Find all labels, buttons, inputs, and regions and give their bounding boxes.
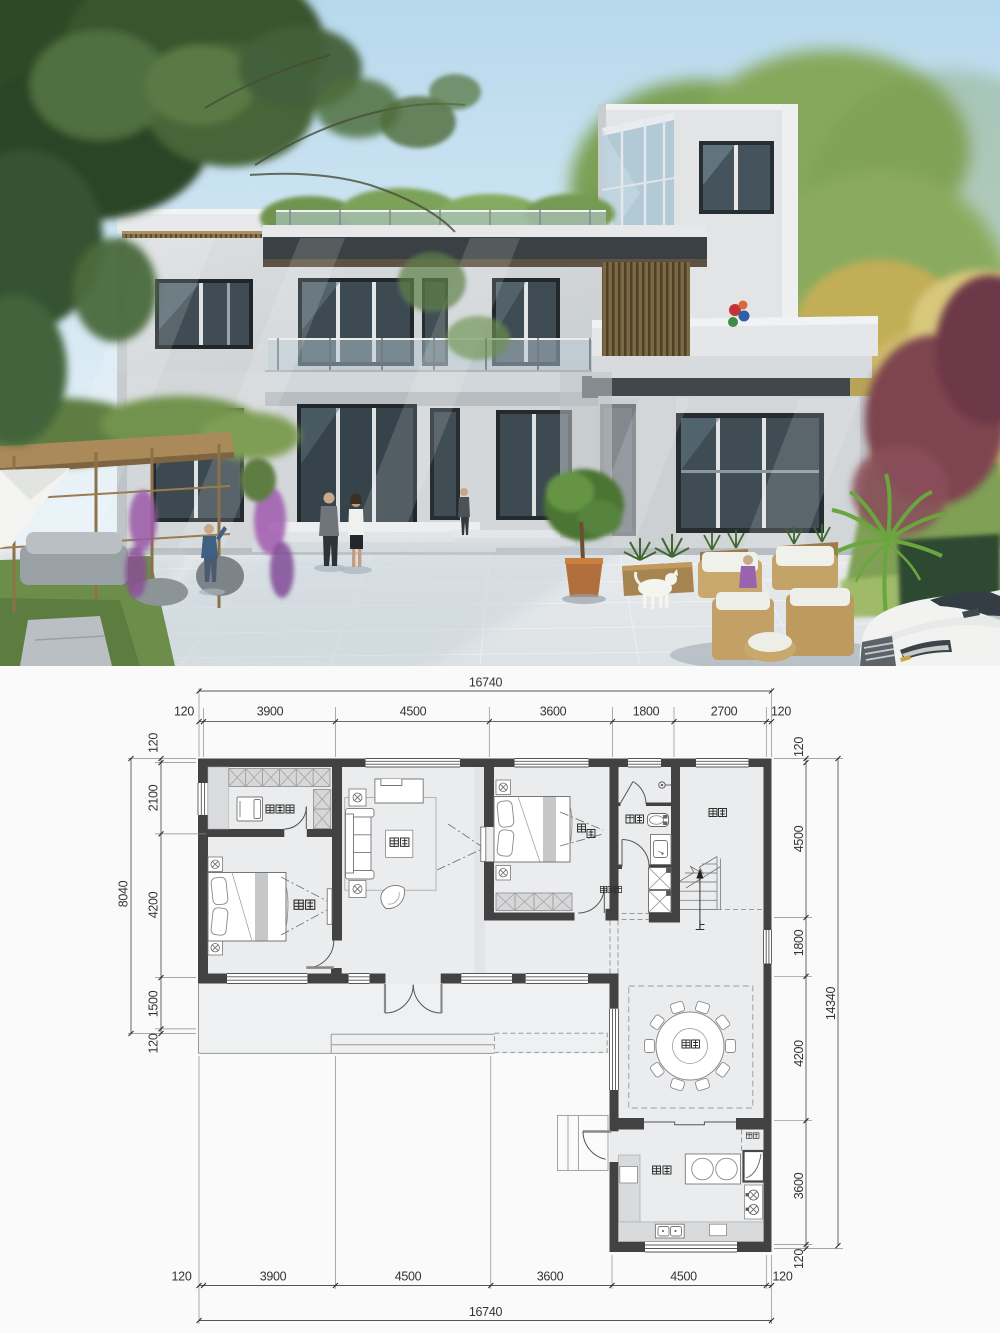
svg-text:120: 120 <box>792 1249 806 1269</box>
svg-text:120: 120 <box>174 705 194 719</box>
svg-text:120: 120 <box>172 1270 192 1284</box>
svg-text:120: 120 <box>147 1033 161 1053</box>
svg-text:14340: 14340 <box>824 987 838 1021</box>
svg-text:4200: 4200 <box>792 1040 806 1067</box>
svg-text:4200: 4200 <box>147 891 161 918</box>
svg-text:3600: 3600 <box>537 1270 564 1284</box>
svg-text:16740: 16740 <box>469 1305 503 1319</box>
svg-text:3600: 3600 <box>792 1172 806 1199</box>
svg-text:120: 120 <box>771 705 791 719</box>
svg-text:4500: 4500 <box>400 705 427 719</box>
svg-text:2700: 2700 <box>711 705 738 719</box>
svg-text:2100: 2100 <box>147 784 161 811</box>
svg-text:4500: 4500 <box>670 1270 697 1284</box>
svg-text:1800: 1800 <box>633 705 660 719</box>
svg-text:1500: 1500 <box>147 990 161 1017</box>
svg-text:3900: 3900 <box>257 705 284 719</box>
svg-text:120: 120 <box>147 733 161 753</box>
svg-text:120: 120 <box>773 1270 793 1284</box>
svg-text:16740: 16740 <box>469 676 503 690</box>
svg-text:3600: 3600 <box>540 705 567 719</box>
svg-text:3900: 3900 <box>260 1270 287 1284</box>
svg-text:4500: 4500 <box>792 825 806 852</box>
svg-text:4500: 4500 <box>395 1270 422 1284</box>
svg-text:120: 120 <box>792 737 806 757</box>
svg-text:8040: 8040 <box>117 880 131 907</box>
svg-text:1800: 1800 <box>792 929 806 956</box>
